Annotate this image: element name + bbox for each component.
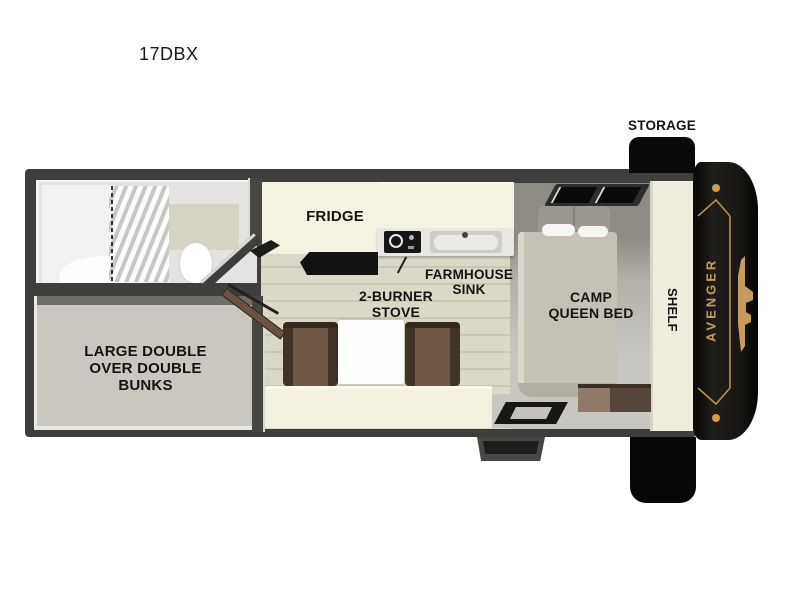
fridge-label: FRIDGE (285, 209, 385, 226)
bunk-head-strip (37, 296, 255, 305)
avenger-wordmark: AVENGER (700, 238, 722, 362)
burner-icon (389, 234, 403, 248)
wardrobe-door (610, 388, 651, 412)
wardrobe-door (578, 388, 610, 412)
cap-rivet-icon (712, 184, 720, 192)
falcon-logo-icon (734, 256, 754, 352)
bedroom-window (544, 184, 650, 206)
window-pane (595, 187, 642, 203)
model-title: 17DBX (139, 44, 199, 65)
wardrobe (578, 384, 651, 412)
window-pane (551, 187, 598, 203)
storage-label: STORAGE (612, 118, 712, 133)
two-burner-stove-label: 2-BURNER STOVE (340, 289, 452, 320)
shelf-label: SHELF (650, 270, 693, 350)
accordion-shower-door (109, 186, 169, 282)
dinette-bench-right (405, 322, 460, 386)
stove-knob-icon (409, 235, 414, 240)
bath-vanity (169, 204, 239, 250)
dinette-bench-left (283, 322, 338, 386)
stove-knob-icon (408, 246, 414, 249)
kitchen-lower-cabinet (300, 252, 378, 275)
farmhouse-sink (430, 231, 502, 253)
storage-box-rear (630, 437, 696, 503)
entry-mat (494, 402, 568, 424)
appliance-counter (377, 228, 514, 256)
entry-step (477, 437, 545, 461)
step-tread (483, 441, 539, 454)
faucet-icon (462, 232, 468, 238)
floorplan-image: 17DBX STORAGE LARGE DOUBLE OVER DOUBLE B… (0, 0, 800, 600)
two-burner-stove (384, 231, 421, 253)
entry-mat-inner (510, 407, 552, 419)
shower-door-rail (111, 186, 113, 282)
pillow (542, 224, 575, 236)
storage-box-front (629, 137, 695, 173)
pillow (578, 226, 608, 237)
bunks-label: LARGE DOUBLE OVER DOUBLE BUNKS (48, 344, 243, 394)
dinette-table (338, 320, 404, 384)
camp-queen-bed-label: CAMP QUEEN BED (528, 290, 654, 321)
galley-ledge (265, 386, 492, 428)
cap-rivet-icon (712, 414, 720, 422)
